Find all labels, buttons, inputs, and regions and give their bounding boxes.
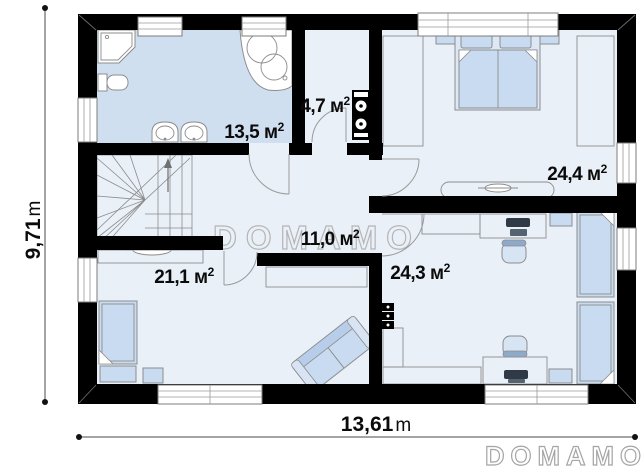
side-table <box>549 369 572 383</box>
toilet-icon <box>98 74 128 91</box>
dimension-width-label: 13,61m <box>341 413 411 436</box>
floor-plan-page: DOMAMO <box>0 0 643 470</box>
window <box>617 143 636 183</box>
window <box>418 13 558 36</box>
office-chair-icon <box>503 336 527 357</box>
room-label-bathroom: 13,5 м2 <box>224 120 284 143</box>
double-bed-icon <box>455 29 540 110</box>
sink-icon <box>152 122 178 142</box>
wall <box>97 236 223 250</box>
wall <box>369 253 382 384</box>
wall <box>289 143 312 155</box>
brand-logo: DOMAMO <box>485 441 643 470</box>
nightstand <box>550 213 572 226</box>
electrical-panel-icon <box>382 303 394 329</box>
room-label-hall: 11,0 м2 <box>301 227 360 250</box>
wall <box>78 143 249 155</box>
window <box>158 385 262 404</box>
wall <box>369 14 382 160</box>
single-bed-icon <box>577 302 614 384</box>
window <box>78 98 97 142</box>
dimension-height-label: 9,71m <box>22 201 45 260</box>
side-table <box>143 368 163 383</box>
window <box>242 17 286 36</box>
room-label-bedroom1: 24,4 м2 <box>547 162 607 185</box>
wall <box>617 14 636 404</box>
wall <box>347 143 383 155</box>
window <box>485 385 588 404</box>
dimension-height: 9,71m <box>22 5 48 405</box>
computer-icon <box>506 218 530 227</box>
wall <box>292 30 305 143</box>
washer-dryer-icon <box>352 90 370 140</box>
sink-icon <box>181 122 207 142</box>
room-label-bedroom2: 21,1 м2 <box>154 265 214 288</box>
bed-chest <box>100 366 136 382</box>
wall <box>257 253 369 266</box>
single-bed-icon <box>99 301 137 364</box>
room-label-bedroom3: 24,3 м2 <box>390 261 450 284</box>
wall <box>369 196 617 213</box>
floor-plan: DOMAMO <box>0 0 643 470</box>
computer-icon <box>504 370 528 379</box>
window <box>78 258 97 302</box>
dimension-width: 13,61m <box>76 413 638 440</box>
room-label-utility: 4,7 м2 <box>300 94 350 117</box>
single-bed-icon <box>577 212 614 297</box>
office-chair-icon <box>502 240 526 263</box>
window <box>617 228 636 270</box>
window <box>138 17 182 36</box>
wall <box>78 14 97 404</box>
